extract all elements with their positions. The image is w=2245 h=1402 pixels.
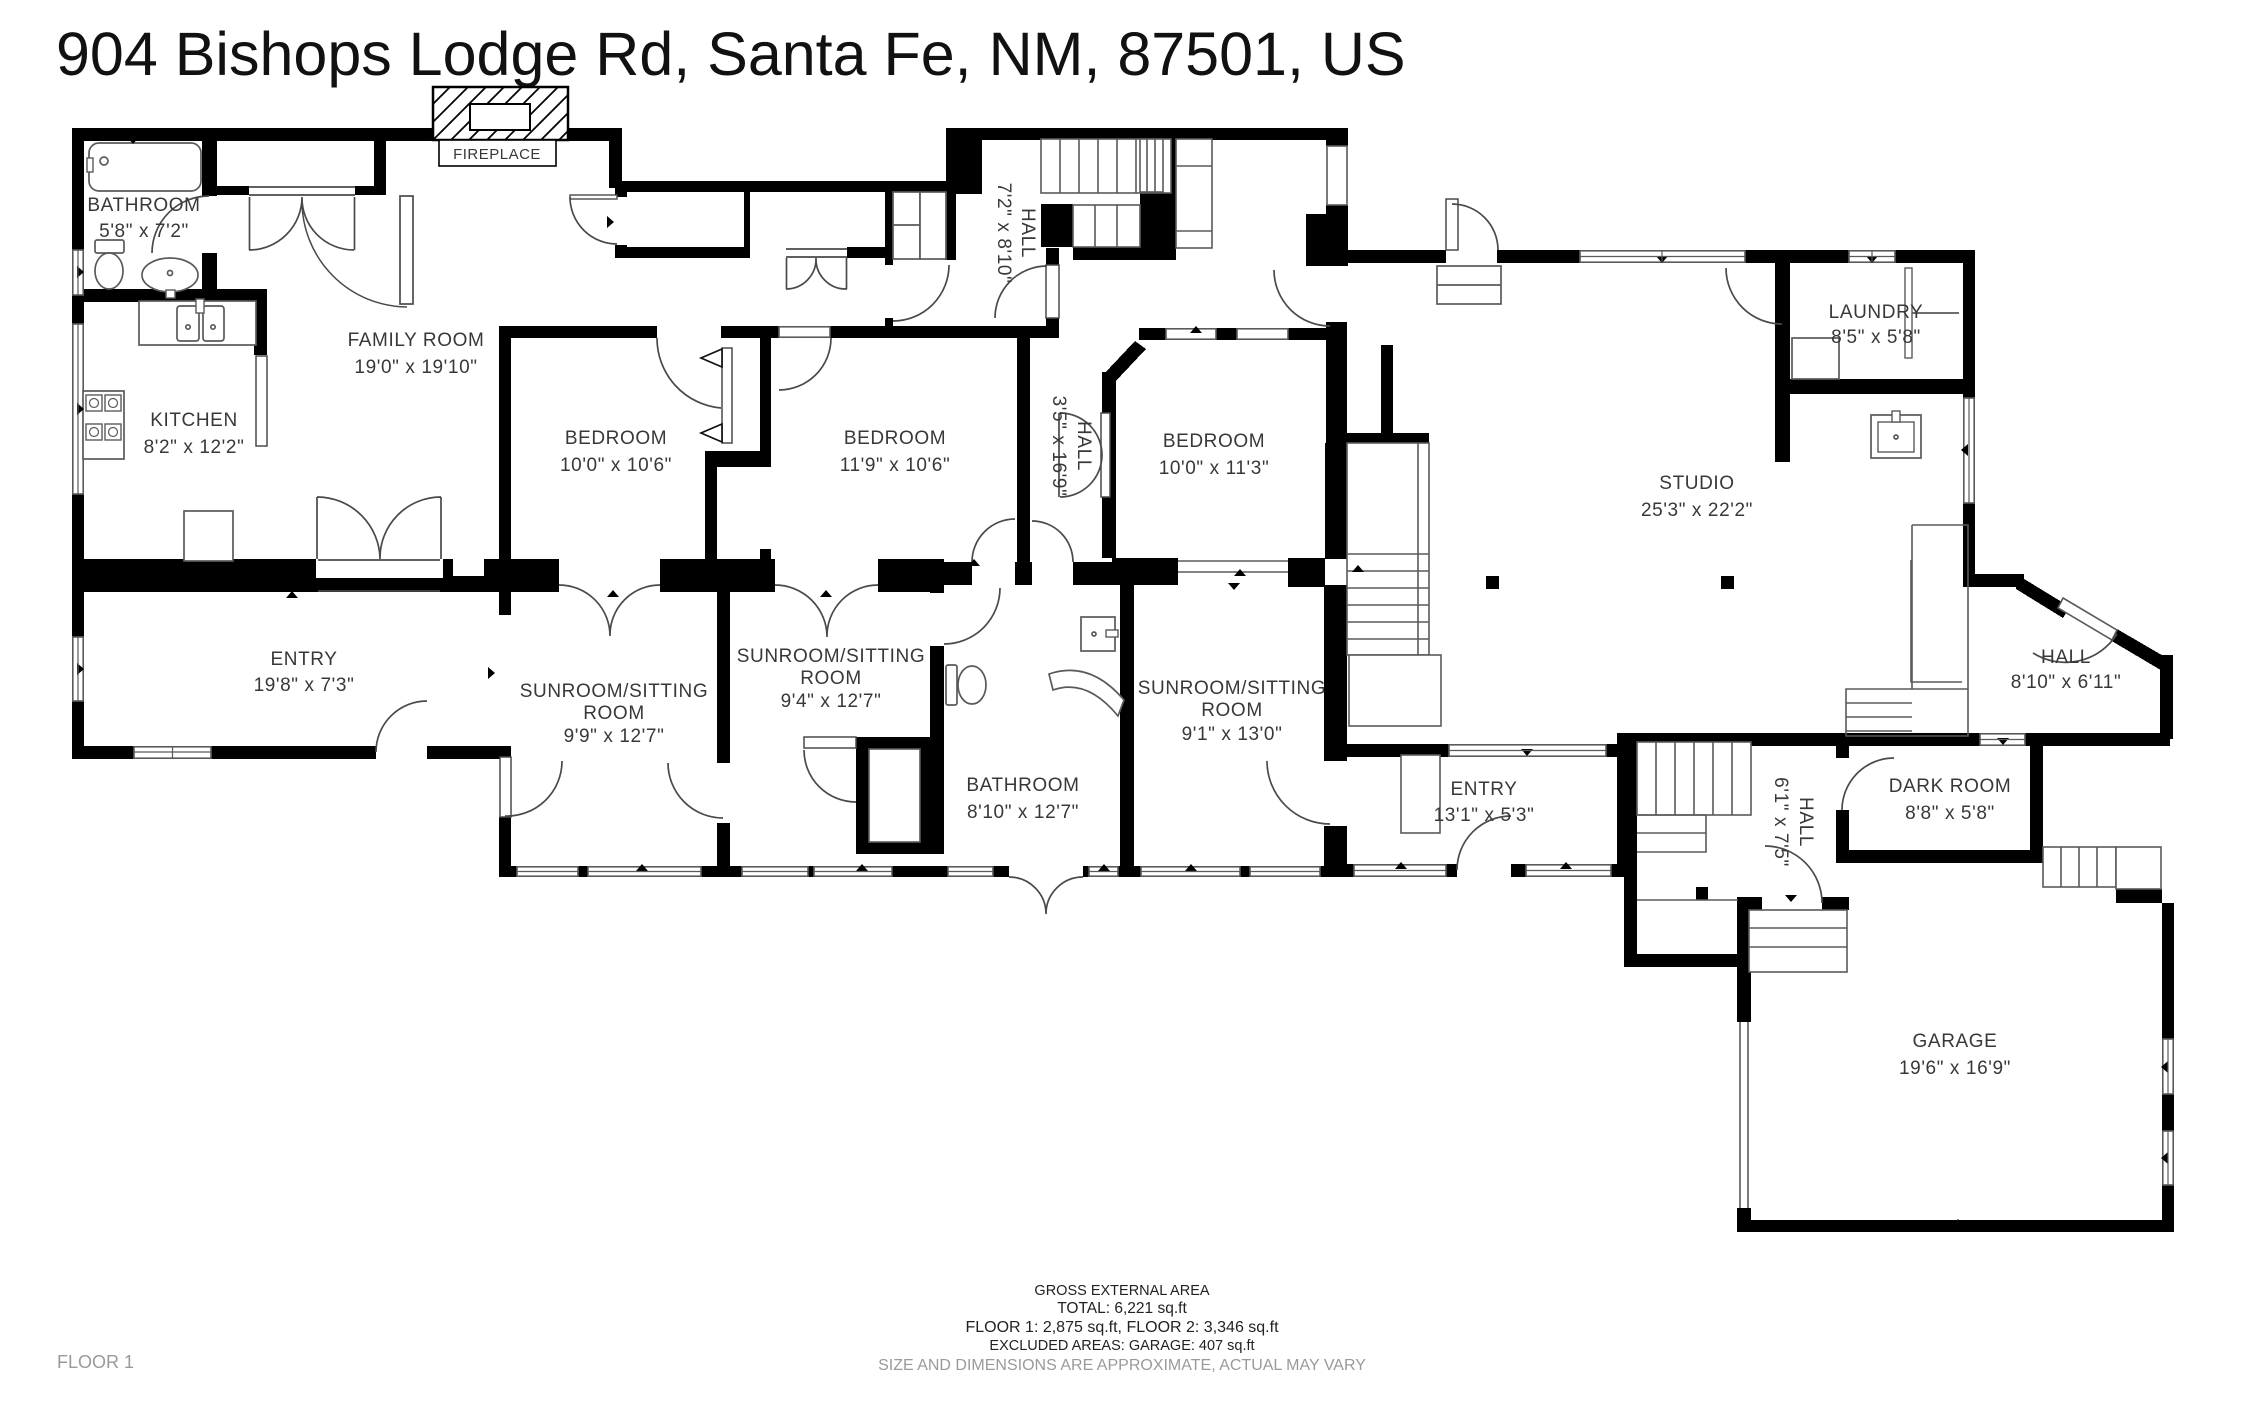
svg-text:SIZE AND DIMENSIONS ARE APPROX: SIZE AND DIMENSIONS ARE APPROXIMATE, ACT… [878,1357,1366,1374]
svg-text:8'8" x 5'8": 8'8" x 5'8" [1905,803,1995,824]
svg-text:25'3" x 22'2": 25'3" x 22'2" [1641,500,1753,521]
svg-text:10'0" x 10'6": 10'0" x 10'6" [560,455,672,476]
svg-text:19'6" x 16'9": 19'6" x 16'9" [1899,1058,2011,1079]
svg-text:FAMILY ROOM: FAMILY ROOM [348,330,485,351]
svg-text:6'1" x 7'5": 6'1" x 7'5" [1770,777,1791,867]
svg-text:TOTAL: 6,221 sq.ft: TOTAL: 6,221 sq.ft [1057,1300,1187,1317]
svg-text:BEDROOM: BEDROOM [844,428,946,449]
svg-text:HALL: HALL [1017,208,1038,258]
svg-text:FLOOR 1: FLOOR 1 [57,1352,134,1372]
svg-text:FLOOR 1: 2,875 sq.ft, FLOOR 2:: FLOOR 1: 2,875 sq.ft, FLOOR 2: 3,346 sq.… [965,1319,1279,1336]
svg-text:ROOM: ROOM [800,668,862,689]
svg-text:BATHROOM: BATHROOM [966,775,1079,796]
svg-text:SUNROOM/SITTING: SUNROOM/SITTING [1138,678,1326,699]
svg-text:SUNROOM/SITTING: SUNROOM/SITTING [737,646,925,667]
svg-text:EXCLUDED AREAS: GARAGE: 407 sq: EXCLUDED AREAS: GARAGE: 407 sq.ft [989,1338,1254,1354]
svg-text:HALL: HALL [2041,647,2091,668]
svg-text:8'10" x 12'7": 8'10" x 12'7" [967,802,1079,823]
svg-text:10'0" x 11'3": 10'0" x 11'3" [1159,458,1270,479]
svg-text:ENTRY: ENTRY [270,649,337,670]
svg-text:HALL: HALL [1795,797,1816,847]
svg-text:BATHROOM: BATHROOM [87,195,200,216]
svg-text:9'9" x 12'7": 9'9" x 12'7" [564,726,665,747]
svg-text:8'2" x 12'2": 8'2" x 12'2" [144,437,245,458]
svg-text:LAUNDRY: LAUNDRY [1829,302,1924,323]
svg-text:3'5" x 16'9": 3'5" x 16'9" [1048,396,1069,497]
svg-text:19'0" x 19'10": 19'0" x 19'10" [354,357,477,378]
svg-text:8'5" x 5'8": 8'5" x 5'8" [1831,327,1921,348]
svg-text:ENTRY: ENTRY [1450,779,1517,800]
svg-text:HALL: HALL [1073,421,1094,471]
svg-text:11'9" x 10'6": 11'9" x 10'6" [840,455,951,476]
svg-text:ROOM: ROOM [1201,700,1263,721]
svg-text:FIREPLACE: FIREPLACE [453,146,541,163]
svg-text:904 Bishops Lodge Rd, Santa Fe: 904 Bishops Lodge Rd, Santa Fe, NM, 8750… [56,20,1406,88]
svg-text:9'1" x 13'0": 9'1" x 13'0" [1182,724,1283,745]
svg-text:7'2" x 8'10": 7'2" x 8'10" [993,183,1014,284]
svg-text:BEDROOM: BEDROOM [1163,431,1265,452]
svg-text:KITCHEN: KITCHEN [150,410,238,431]
svg-text:GROSS EXTERNAL AREA: GROSS EXTERNAL AREA [1034,1283,1209,1299]
svg-text:19'8" x 7'3": 19'8" x 7'3" [254,675,355,696]
svg-text:BEDROOM: BEDROOM [565,428,667,449]
svg-text:8'10" x 6'11": 8'10" x 6'11" [2011,672,2122,693]
svg-text:SUNROOM/SITTING: SUNROOM/SITTING [520,681,708,702]
svg-text:DARK ROOM: DARK ROOM [1889,776,2012,797]
svg-text:13'1" x 5'3": 13'1" x 5'3" [1434,805,1535,826]
svg-text:ROOM: ROOM [583,703,645,724]
svg-text:STUDIO: STUDIO [1659,473,1734,494]
svg-text:9'4" x 12'7": 9'4" x 12'7" [781,691,882,712]
svg-text:GARAGE: GARAGE [1913,1031,1998,1052]
svg-text:5'8" x 7'2": 5'8" x 7'2" [99,221,189,242]
